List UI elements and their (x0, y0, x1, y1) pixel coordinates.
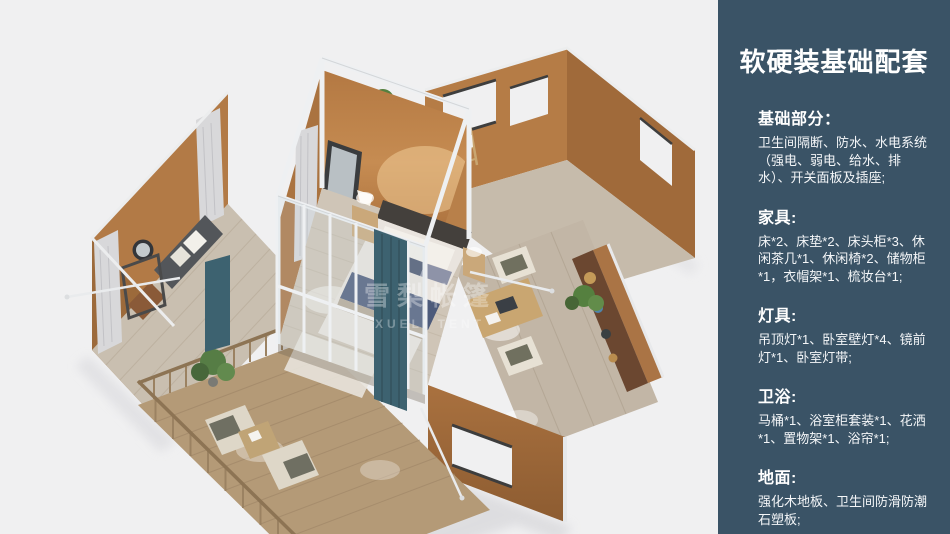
panel-title: 软硬装基础配套 (726, 42, 942, 79)
section-heading: 灯具: (758, 302, 928, 326)
section-body: 吊顶灯*1、卧室壁灯*4、镜前灯*1、卧室灯带; (758, 331, 928, 366)
watermark: 雪梨帐篷 XUELI TENT (364, 281, 496, 331)
floorplan-illustration: 雪梨帐篷 XUELI TENT (0, 0, 718, 534)
section-furniture: 家具: 床*2、床垫*2、床头柜*3、休闲茶几*1、休闲椅*2、储物柜*1，衣帽… (758, 204, 928, 286)
section-body: 强化木地板、卫生间防滑防潮石塑板; (758, 493, 928, 528)
section-lighting: 灯具: 吊顶灯*1、卧室壁灯*4、镜前灯*1、卧室灯带; (758, 302, 928, 366)
section-flooring: 地面: 强化木地板、卫生间防滑防潮石塑板; (758, 464, 928, 528)
lounge-curtain-right (196, 108, 224, 227)
bowl (609, 354, 618, 363)
section-heading: 卫浴: (758, 383, 928, 407)
section-heading: 基础部分： (758, 105, 928, 129)
brochure-slide: 雪梨帐篷 XUELI TENT 软硬装基础配套 基础部分： 卫生间隔断、防水、水… (0, 0, 950, 534)
section-body: 卫生间隔断、防水、水电系统（强电、弱电、给水、排水）、开关面板及插座; (758, 134, 928, 187)
lamp-glow (356, 192, 374, 204)
section-body: 马桶*1、浴室柜套装*1、花洒*1、置物架*1、浴帘*1; (758, 412, 928, 447)
section-heading: 家具: (758, 204, 928, 228)
watermark-en: XUELI TENT (375, 317, 485, 331)
floorplan-render: 雪梨帐篷 XUELI TENT (0, 0, 718, 534)
section-body: 床*2、床垫*2、床头柜*3、休闲茶几*1、休闲椅*2、储物柜*1，衣帽架*1、… (758, 233, 928, 286)
section-basics: 基础部分： 卫生间隔断、防水、水电系统（强电、弱电、给水、排水）、开关面板及插座… (758, 105, 928, 187)
teal-curtain-left (205, 255, 230, 352)
section-bathroom: 卫浴: 马桶*1、浴室柜套装*1、花洒*1、置物架*1、浴帘*1; (758, 383, 928, 447)
lamp-glow-2 (466, 247, 482, 257)
dark-bowl (601, 329, 611, 339)
watermark-cn: 雪梨帐篷 (364, 281, 496, 311)
round-mirror-glass (136, 243, 150, 257)
light-glow (360, 460, 400, 480)
basket (584, 272, 596, 284)
section-heading: 地面: (758, 464, 928, 488)
spec-panel: 软硬装基础配套 基础部分： 卫生间隔断、防水、水电系统（强电、弱电、给水、排水）… (718, 0, 950, 534)
